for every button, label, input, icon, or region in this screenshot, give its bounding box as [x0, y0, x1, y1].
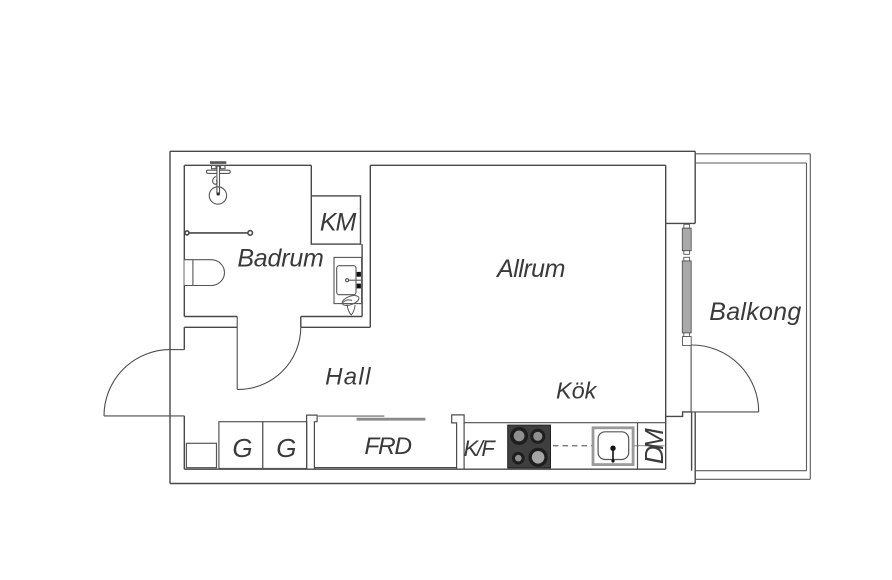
svg-text:KM: KM [320, 209, 357, 237]
svg-text:FRD: FRD [364, 433, 411, 460]
svg-text:Hall: Hall [325, 364, 372, 391]
svg-text:Allrum: Allrum [495, 255, 565, 283]
svg-text:Badrum: Badrum [237, 245, 323, 273]
svg-text:G: G [232, 433, 252, 463]
svg-text:DM: DM [639, 428, 669, 464]
svg-text:Kök: Kök [556, 377, 598, 403]
svg-text:G: G [276, 433, 296, 463]
svg-text:K/F: K/F [464, 436, 497, 461]
svg-text:Balkong: Balkong [709, 298, 801, 326]
